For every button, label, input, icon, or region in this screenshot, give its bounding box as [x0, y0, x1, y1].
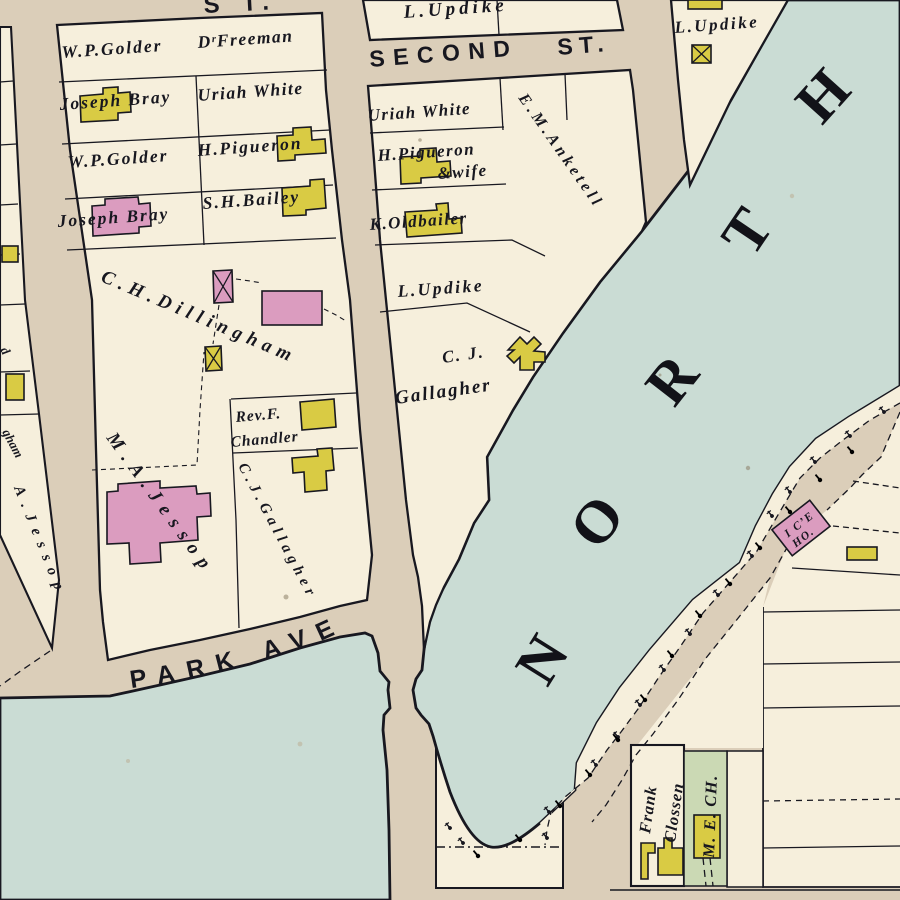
svg-text:&wife: &wife	[437, 161, 488, 183]
svg-text:ST.: ST.	[556, 30, 611, 60]
svg-text:M. E. CH.: M. E. CH.	[699, 774, 721, 859]
